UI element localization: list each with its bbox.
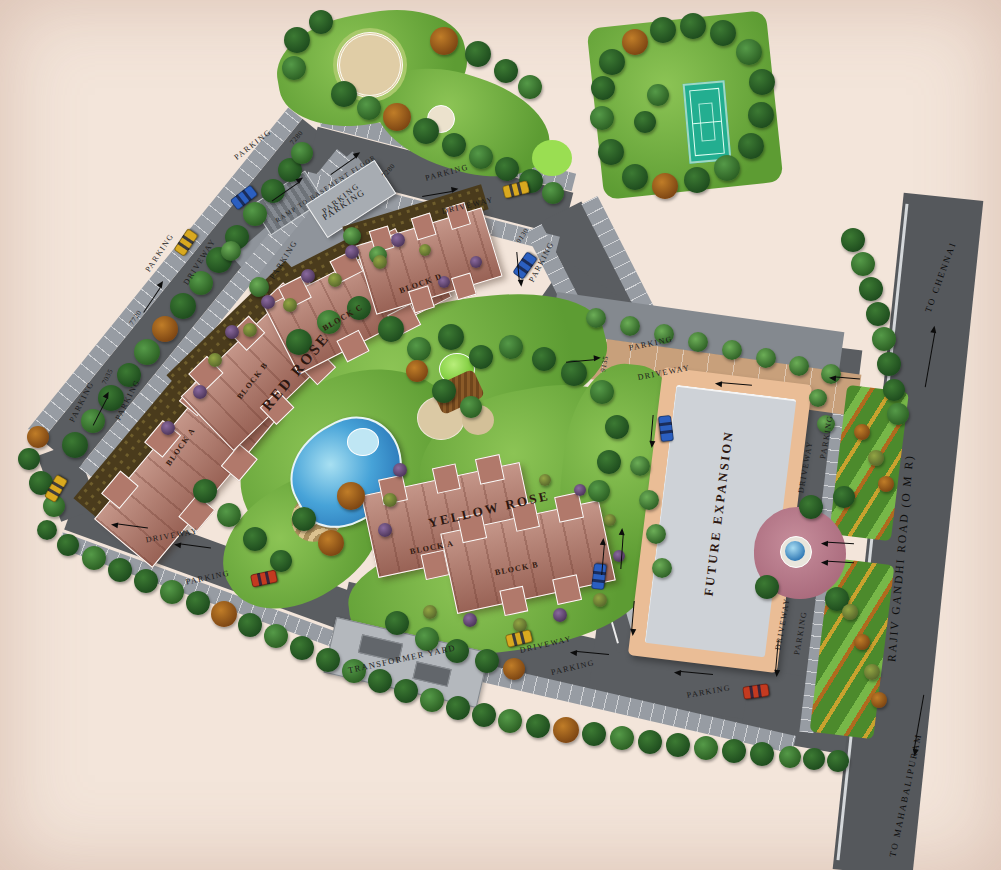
palm-tree [639,490,659,510]
tree [710,20,736,46]
tree [134,569,158,593]
tree [597,450,621,474]
palm-tree [249,277,269,297]
tree [883,379,905,401]
tree [394,679,418,703]
shrub [378,523,392,537]
shrub [393,463,407,477]
tree [316,648,340,672]
shrub [301,269,315,283]
kids-pool [347,428,379,456]
tree [650,17,676,43]
tree [877,352,901,376]
tree [357,96,381,120]
tree [738,133,764,159]
shrub [243,323,257,337]
tree [494,59,518,83]
tree [385,611,409,635]
shrub [345,245,359,259]
building-wing [475,454,504,485]
palm-tree [630,456,650,476]
shrub [383,493,397,507]
shrub [261,295,275,309]
tree [841,228,865,252]
tree [591,76,615,100]
tree [238,613,262,637]
shrub [842,604,858,620]
palm-tree [756,348,776,368]
tree [622,29,648,55]
tree [420,688,444,712]
tree [714,155,740,181]
tree [498,709,522,733]
tree [590,106,614,130]
tree [368,669,392,693]
tree [264,624,288,648]
tree [108,558,132,582]
tree [282,56,306,80]
tree [243,527,267,551]
palm-tree [809,389,827,407]
shrub [613,550,625,562]
tree [588,480,610,502]
fountain-water [785,541,805,561]
tree [859,277,883,301]
tennis-court-lines [689,88,725,156]
shrub [193,385,207,399]
tree [475,649,499,673]
shrub [463,613,477,627]
tree [495,157,519,181]
tree [684,167,710,193]
tree [694,736,718,760]
tree [878,476,894,492]
building-wing [431,463,460,494]
tree [755,575,779,599]
palm-tree [620,316,640,336]
shrub [868,450,884,466]
shrub [373,255,387,269]
tree [833,486,855,508]
shrub [225,325,239,339]
shrub [419,244,431,256]
building-wing [499,585,528,616]
tennis-court [683,80,732,163]
palm-tree [221,241,241,261]
tree [309,10,333,34]
tree [647,84,669,106]
tree [211,601,237,627]
shrub [391,233,405,247]
tree [134,339,160,365]
palm-tree [722,340,742,360]
shrub [208,353,222,367]
tree [160,580,184,604]
tree [503,658,525,680]
tree [318,530,344,556]
tree [337,482,365,510]
tree [854,634,870,650]
tree [270,550,292,572]
shrub [161,421,175,435]
tree [590,380,614,404]
tree [331,81,357,107]
tree [406,360,428,382]
tree [854,424,870,440]
tree [634,111,656,133]
tree [378,316,404,342]
tree [62,432,88,458]
tree [217,503,241,527]
tree [561,360,587,386]
tree [460,396,482,418]
tree [736,39,762,65]
tree [526,714,550,738]
shrub [553,608,567,622]
tree [57,534,79,556]
tree [866,302,890,326]
tree [803,748,825,770]
tree [469,345,493,369]
tree [413,118,439,144]
tree [680,13,706,39]
tree [598,139,624,165]
tree [518,75,542,99]
tree [871,692,887,708]
shrub [328,273,342,287]
building-wing [555,492,584,523]
tree [469,145,493,169]
tree [582,722,606,746]
tree [887,403,909,425]
tree [610,726,634,750]
entrance-fountain [780,536,812,568]
tree [799,495,823,519]
palm-tree [652,558,672,578]
tree [465,41,491,67]
palm-tree [646,524,666,544]
tree [622,164,648,190]
tree [430,27,458,55]
tree [638,730,662,754]
tree [872,327,896,351]
tree [446,696,470,720]
building-wing [552,574,581,605]
tree [284,27,310,53]
tree [722,739,746,763]
tree [37,520,57,540]
tree [152,316,178,342]
shrub [604,514,616,526]
tree [748,102,774,128]
shrub [593,593,607,607]
shrub [470,256,482,268]
palm-tree [343,227,361,245]
tree [407,337,431,361]
palm-tree [688,332,708,352]
transformer-unit [412,661,451,686]
shrub [574,484,586,496]
tree [186,591,210,615]
tree [472,703,496,727]
tree [827,750,849,772]
tree [27,426,49,448]
shrub [864,664,880,680]
shrub [283,298,297,312]
shrub [539,474,551,486]
site-master-plan: PARKING7280PARKINGRAMP TO BASEMENT FLOOR… [0,0,1001,870]
tree [290,636,314,660]
tree [170,293,196,319]
tree [553,717,579,743]
tree [383,103,411,131]
palm-tree [586,308,606,328]
tree [243,202,267,226]
tree [82,546,106,570]
tree [599,49,625,75]
tree [18,448,40,470]
tree [779,746,801,768]
tree [81,409,105,433]
tree [750,742,774,766]
tree [542,182,564,204]
tree [532,347,556,371]
tree [432,379,456,403]
tree [442,133,466,157]
tree [193,479,217,503]
tree [851,252,875,276]
tree [292,507,316,531]
palm-tree [789,356,809,376]
tree [749,69,775,95]
tree [666,733,690,757]
tree [605,415,629,439]
shrub [423,605,437,619]
tree [438,324,464,350]
tree [499,335,523,359]
tree [652,173,678,199]
